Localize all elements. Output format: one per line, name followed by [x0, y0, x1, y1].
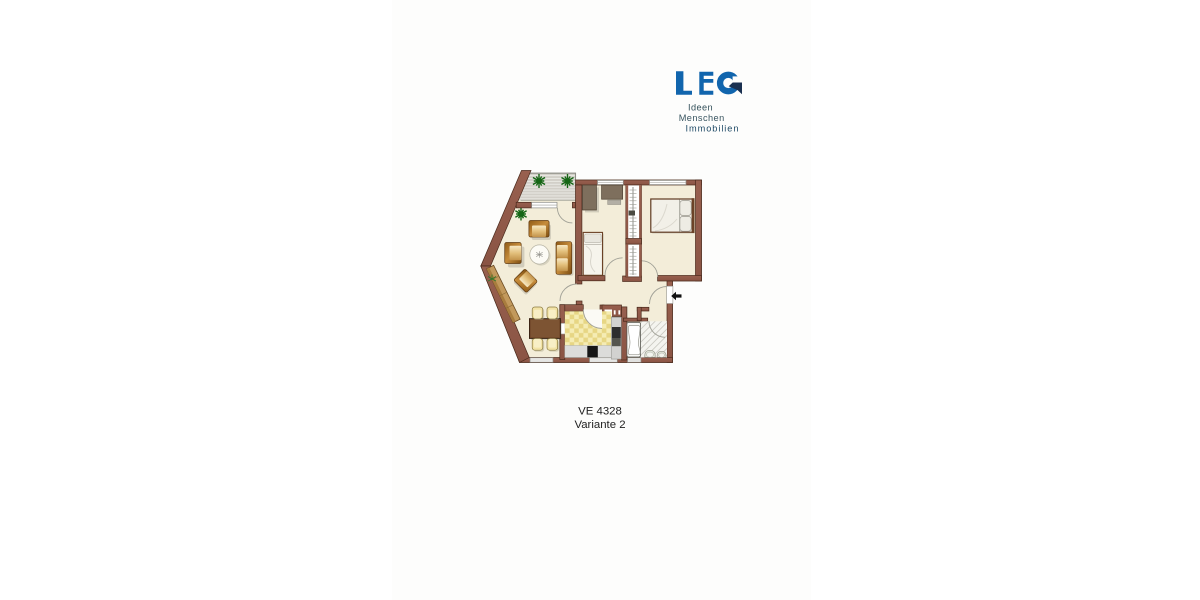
svg-text:Variante 2: Variante 2: [574, 419, 625, 431]
svg-text:Immobilien: Immobilien: [686, 123, 740, 133]
svg-text:Menschen: Menschen: [679, 113, 725, 123]
svg-text:Ideen: Ideen: [688, 103, 713, 113]
svg-text:VE 4328: VE 4328: [578, 405, 622, 417]
